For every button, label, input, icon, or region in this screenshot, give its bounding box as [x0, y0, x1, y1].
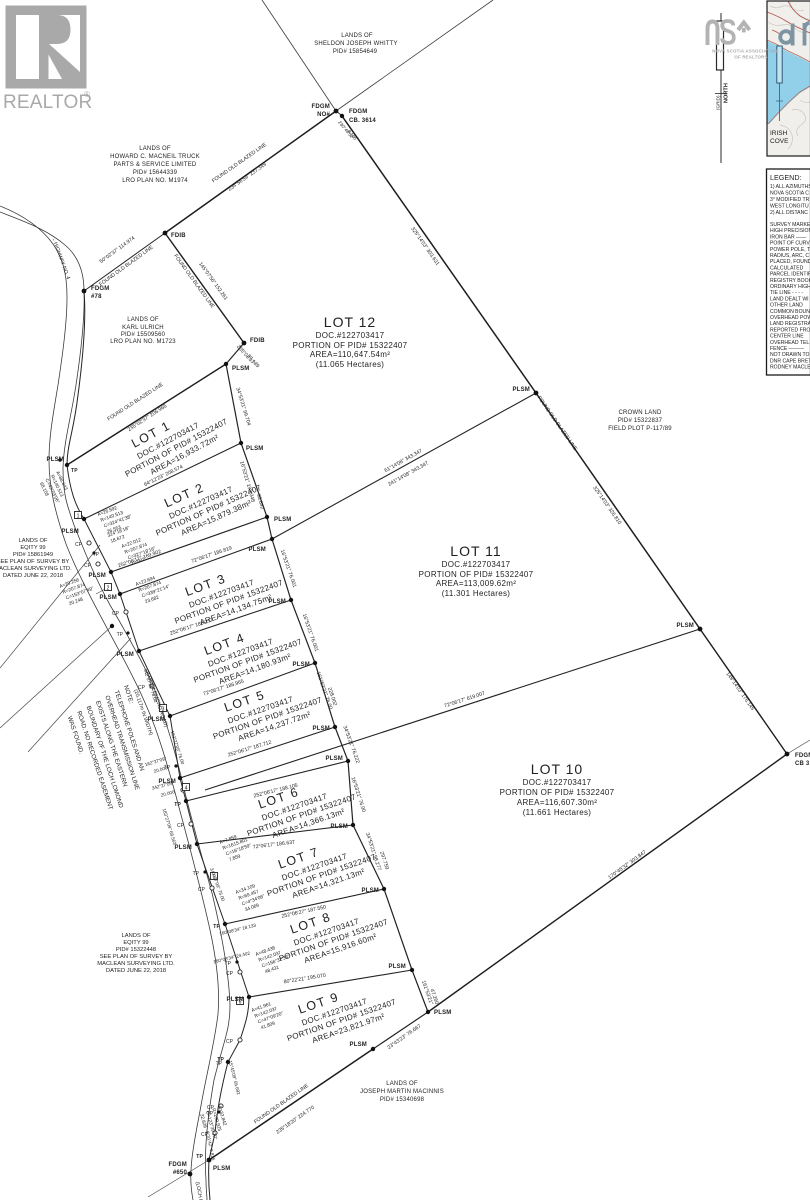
- svg-text:CB. 3614: CB. 3614: [349, 118, 376, 124]
- svg-text:WEST LONGITU: WEST LONGITU: [770, 204, 809, 210]
- svg-text:TP: TP: [225, 961, 232, 967]
- svg-text:#650: #650: [173, 1170, 188, 1176]
- svg-text:OTHER LAND: OTHER LAND: [770, 303, 803, 309]
- svg-text:NO#: NO#: [317, 112, 330, 118]
- svg-text:LANDS OF: LANDS OF: [341, 33, 373, 39]
- svg-text:ORDINARY HIGH: ORDINARY HIGH: [770, 284, 810, 290]
- svg-text:TP: TP: [196, 1154, 203, 1160]
- svg-text:DATED JUNE 22, 2018: DATED JUNE 22, 2018: [106, 968, 166, 974]
- svg-text:HOWARD C. MACNEIL TRUCK: HOWARD C. MACNEIL TRUCK: [110, 154, 200, 160]
- svg-text:SEE PLAN OF SURVEY BY: SEE PLAN OF SURVEY BY: [100, 954, 173, 960]
- svg-text:OVERHEAD POW: OVERHEAD POW: [770, 315, 810, 321]
- svg-text:FIELD PLOT P-117/89: FIELD PLOT P-117/89: [608, 426, 672, 432]
- svg-text:OVERHEAD TEL: OVERHEAD TEL: [770, 340, 809, 346]
- svg-text:PLSM: PLSM: [47, 457, 64, 463]
- svg-text:COVE: COVE: [770, 138, 789, 145]
- svg-text:KARL ULRICH: KARL ULRICH: [122, 325, 164, 331]
- svg-text:TIE LINE - - - -: TIE LINE - - - -: [770, 290, 803, 296]
- svg-text:CP: CP: [112, 611, 120, 617]
- svg-text:RODNEY MACLE: RODNEY MACLE: [770, 365, 810, 371]
- svg-text:2) ALL DISTANC: 2) ALL DISTANC: [770, 210, 808, 216]
- svg-text:PID# 15340698: PID# 15340698: [380, 1097, 425, 1103]
- svg-text:PLSM: PLSM: [89, 573, 106, 579]
- svg-text:SEE PLAN OF SURVEY BY: SEE PLAN OF SURVEY BY: [0, 559, 69, 565]
- svg-text:DNR CAPE BRET: DNR CAPE BRET: [770, 358, 810, 364]
- svg-text:RADIUS, ARC, C: RADIUS, ARC, C: [770, 253, 809, 259]
- svg-text:CB 3: CB 3: [795, 761, 810, 767]
- svg-text:CALCULATED: CALCULATED: [770, 265, 804, 271]
- svg-text:FDGM: FDGM: [795, 753, 810, 759]
- svg-text:MACLEAN SURVEYING LTD.: MACLEAN SURVEYING LTD.: [97, 961, 175, 967]
- svg-text:#78: #78: [91, 294, 102, 300]
- svg-text:PLSM: PLSM: [274, 517, 291, 523]
- svg-text:REPORTED FRO: REPORTED FRO: [770, 327, 810, 333]
- svg-text:1: 1: [77, 514, 80, 520]
- svg-text:REALTOR: REALTOR: [3, 92, 92, 113]
- svg-text:PLSM: PLSM: [313, 726, 330, 732]
- svg-text:PID# 15644339: PID# 15644339: [133, 170, 178, 176]
- svg-text:JOSEPH MARTIN MACINNIS: JOSEPH MARTIN MACINNIS: [360, 1089, 444, 1095]
- svg-text:SHELDON JOSEPH WHITTY: SHELDON JOSEPH WHITTY: [314, 41, 398, 47]
- svg-text:3° MODIFIED TR: 3° MODIFIED TR: [770, 197, 810, 203]
- svg-text:CP: CP: [177, 823, 185, 829]
- svg-text:DOC.#122703417: DOC.#122703417: [442, 560, 511, 569]
- svg-text:CP: CP: [198, 887, 206, 893]
- svg-text:LOT 10: LOT 10: [531, 761, 583, 777]
- svg-text:LAND REGISTRA: LAND REGISTRA: [770, 321, 810, 327]
- svg-text:PARTS & SERVICE LIMITED: PARTS & SERVICE LIMITED: [114, 162, 197, 168]
- svg-text:PLSM: PLSM: [249, 547, 266, 553]
- svg-text:®: ®: [84, 90, 90, 99]
- svg-text:LANDS OF: LANDS OF: [19, 538, 48, 544]
- svg-text:TP: TP: [117, 632, 124, 638]
- svg-text:TP: TP: [213, 924, 220, 930]
- svg-text:PLSM: PLSM: [434, 1010, 451, 1016]
- svg-text:PLSM: PLSM: [389, 964, 406, 970]
- svg-text:TP: TP: [174, 802, 181, 808]
- svg-text:PID# 15509560: PID# 15509560: [121, 332, 166, 338]
- svg-text:LANDS OF: LANDS OF: [122, 933, 151, 939]
- svg-text:SURVEY MARKE: SURVEY MARKE: [770, 222, 810, 228]
- svg-text:PLSM: PLSM: [227, 997, 244, 1003]
- svg-text:AREA=110,647.54m²: AREA=110,647.54m²: [310, 350, 390, 359]
- svg-text:PLSM: PLSM: [677, 623, 694, 629]
- svg-text:LANDS OF: LANDS OF: [127, 317, 159, 323]
- svg-text:LAND DEALT WI: LAND DEALT WI: [770, 296, 809, 302]
- svg-text:TP: TP: [93, 552, 100, 558]
- svg-text:PID# 15322837: PID# 15322837: [618, 418, 663, 424]
- svg-text:LRO PLAN NO. M1723: LRO PLAN NO. M1723: [110, 339, 176, 345]
- svg-text:FDIB: FDIB: [171, 233, 186, 239]
- svg-text:LOT 11: LOT 11: [450, 543, 501, 559]
- svg-text:NORTH: NORTH: [724, 83, 730, 103]
- svg-text:FDGM: FDGM: [169, 1162, 187, 1168]
- svg-text:4: 4: [185, 786, 188, 792]
- svg-text:REGISTRY BOOK: REGISTRY BOOK: [770, 278, 810, 284]
- svg-text:(11.301 Hectares): (11.301 Hectares): [442, 589, 511, 598]
- svg-text:AREA=113,009.62m²: AREA=113,009.62m²: [436, 579, 516, 588]
- svg-text:PLSM: PLSM: [62, 529, 79, 535]
- svg-text:CP: CP: [226, 1039, 234, 1045]
- svg-text:CP: CP: [75, 542, 83, 548]
- svg-text:POWER POLE, T: POWER POLE, T: [770, 247, 810, 253]
- svg-text:EQITY 99: EQITY 99: [20, 545, 45, 551]
- svg-text:CP: CP: [84, 563, 92, 569]
- svg-text:PLSM: PLSM: [175, 845, 192, 851]
- svg-text:HIGH PRECISION: HIGH PRECISION: [770, 228, 810, 234]
- svg-text:PID# 15854649: PID# 15854649: [333, 49, 378, 55]
- svg-text:CENTER LINE: CENTER LINE: [770, 334, 804, 340]
- svg-text:TP: TP: [216, 1061, 223, 1067]
- svg-text:NOVA SCOTIA ASSOCIATION: NOVA SCOTIA ASSOCIATION: [712, 49, 778, 54]
- svg-text:PLSM: PLSM: [293, 662, 310, 668]
- svg-text:PLSM: PLSM: [246, 446, 263, 452]
- svg-text:PORTION OF PID# 15322407: PORTION OF PID# 15322407: [293, 341, 408, 350]
- svg-text:NOVA SCOTIA C: NOVA SCOTIA C: [770, 191, 809, 197]
- svg-text:LANDS OF: LANDS OF: [386, 1081, 418, 1087]
- svg-text:PORTION OF PID# 15322407: PORTION OF PID# 15322407: [419, 570, 534, 579]
- svg-text:LANDS OF: LANDS OF: [139, 146, 171, 152]
- svg-text:PARCEL IDENTIF: PARCEL IDENTIF: [770, 272, 810, 278]
- svg-text:DATED JUNE 22, 2018: DATED JUNE 22, 2018: [3, 573, 63, 579]
- svg-text:COMMON BOUN: COMMON BOUN: [770, 309, 810, 315]
- svg-text:PLSM: PLSM: [362, 888, 379, 894]
- svg-text:PLSM: PLSM: [513, 387, 530, 393]
- svg-text:POINT OF CURV: POINT OF CURV: [770, 241, 810, 247]
- svg-text:TP: TP: [193, 871, 200, 877]
- svg-text:FENCE ———: FENCE ———: [770, 346, 805, 352]
- svg-text:AREA=116,607.30m²: AREA=116,607.30m²: [517, 798, 597, 807]
- svg-text:NOT DRAWN TO: NOT DRAWN TO: [770, 352, 809, 358]
- svg-text:PID# 15322448: PID# 15322448: [116, 947, 156, 953]
- svg-text:DOC.#122703417: DOC.#122703417: [316, 331, 385, 340]
- svg-text:OF REALTORS: OF REALTORS: [734, 55, 767, 60]
- svg-text:EQITY 99: EQITY 99: [123, 940, 148, 946]
- svg-text:FDGM: FDGM: [349, 109, 367, 115]
- svg-text:PLSM: PLSM: [100, 595, 117, 601]
- svg-text:1) ALL AZIMUTHS: 1) ALL AZIMUTHS: [770, 184, 810, 190]
- svg-text:LEGEND:: LEGEND:: [770, 173, 802, 182]
- svg-text:PLSM: PLSM: [350, 1042, 367, 1048]
- svg-text:IRISH: IRISH: [770, 130, 788, 137]
- svg-text:(11.661 Hectares): (11.661 Hectares): [523, 808, 592, 817]
- svg-text:DOC.#122703417: DOC.#122703417: [523, 778, 592, 787]
- svg-text:FDIB: FDIB: [250, 338, 265, 344]
- svg-text:PLSM: PLSM: [213, 1166, 230, 1172]
- svg-text:LOT 12: LOT 12: [324, 314, 376, 330]
- svg-text:PLSM: PLSM: [232, 366, 249, 372]
- svg-text:PLSM: PLSM: [117, 652, 134, 658]
- svg-text:PORTION OF PID# 15322407: PORTION OF PID# 15322407: [500, 788, 615, 797]
- svg-text:IRON BAR ——: IRON BAR ——: [770, 234, 807, 240]
- svg-text:CROWN LAND: CROWN LAND: [618, 410, 661, 416]
- svg-text:(11.065 Hectares): (11.065 Hectares): [316, 360, 385, 369]
- svg-text:LRO PLAN NO. M1974: LRO PLAN NO. M1974: [122, 178, 188, 184]
- svg-text:(GRID): (GRID): [716, 95, 721, 110]
- svg-text:TP: TP: [71, 468, 78, 474]
- svg-text:MACLEAN SURVEYING LTD.: MACLEAN SURVEYING LTD.: [0, 566, 72, 572]
- svg-text:PLSM: PLSM: [331, 824, 348, 830]
- svg-text:2: 2: [107, 586, 110, 592]
- svg-text:PLSM: PLSM: [326, 756, 343, 762]
- svg-text:FDGM: FDGM: [312, 104, 330, 110]
- svg-text:PLACED, FOUND: PLACED, FOUND: [770, 259, 810, 265]
- svg-text:CP: CP: [226, 971, 234, 977]
- svg-text:PID# 15861949: PID# 15861949: [13, 552, 53, 558]
